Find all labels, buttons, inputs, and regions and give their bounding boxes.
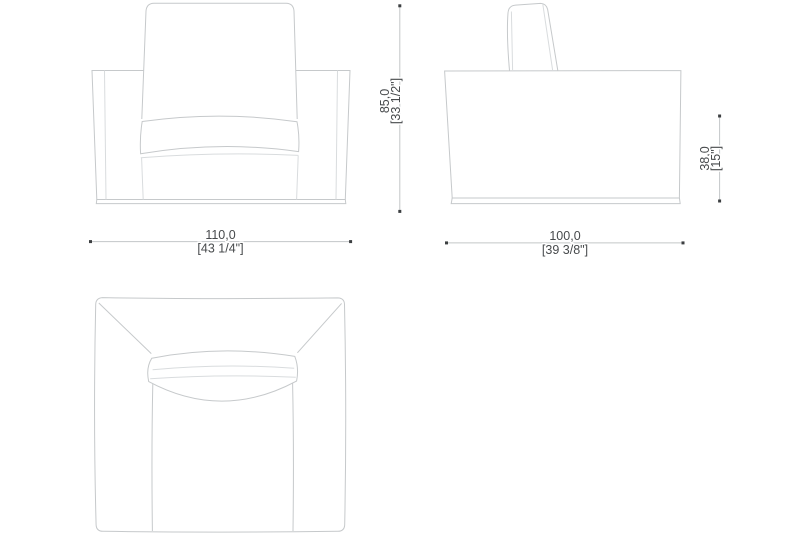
overall-height-value-inches: [33 1/2"] (389, 78, 403, 124)
dimension-front-width-marker-right (349, 240, 352, 243)
dimension-seat-height-marker-bottom (718, 200, 721, 203)
dimension-front-width-marker-left (89, 240, 92, 243)
technical-drawing-sheet: 110,0 [43 1/4"] 85,0 [33 1/2"] 100,0 [39… (0, 0, 794, 548)
seat-height-value-inches: [15"] (709, 146, 723, 171)
front-width-value-cm: 110,0 (205, 228, 235, 242)
front-view-backrest-outline (142, 3, 297, 119)
side-view-base (451, 198, 680, 204)
top-view (95, 298, 346, 532)
side-view-backrest-outline (508, 3, 558, 70)
front-width-value-inches: [43 1/4"] (197, 242, 243, 256)
dimension-depth-marker-left (445, 241, 448, 244)
side-view-body-outline (445, 71, 681, 198)
depth-value-cm: 100,0 (549, 229, 580, 243)
dimension-seat-height-marker-top (718, 115, 721, 118)
armchair-dimension-drawing: 110,0 [43 1/4"] 85,0 [33 1/2"] 100,0 [39… (0, 0, 794, 548)
depth-value-inches: [39 3/8"] (542, 243, 588, 257)
dimension-depth-marker-right (682, 241, 685, 244)
dimension-seat-height: 38,0 [15"] (698, 115, 723, 203)
front-view-base (96, 200, 345, 204)
dimension-depth: 100,0 [39 3/8"] (445, 229, 685, 257)
top-view-body-outline (95, 298, 346, 532)
dimension-front-width: 110,0 [43 1/4"] (89, 228, 352, 256)
dimension-overall-height: 85,0 [33 1/2"] (378, 4, 403, 213)
dimension-overall-height-marker-bottom (398, 210, 401, 213)
side-view (445, 3, 681, 203)
front-view (92, 3, 350, 203)
dimension-overall-height-marker-top (398, 4, 401, 7)
